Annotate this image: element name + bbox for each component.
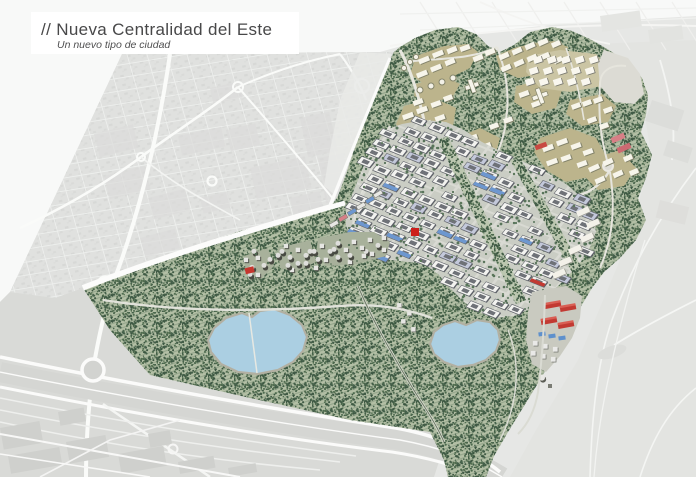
- svg-text:// Nueva Centralidad del Este: // Nueva Centralidad del Este: [41, 20, 272, 39]
- svg-text:Un nuevo tipo de ciudad: Un nuevo tipo de ciudad: [57, 39, 171, 51]
